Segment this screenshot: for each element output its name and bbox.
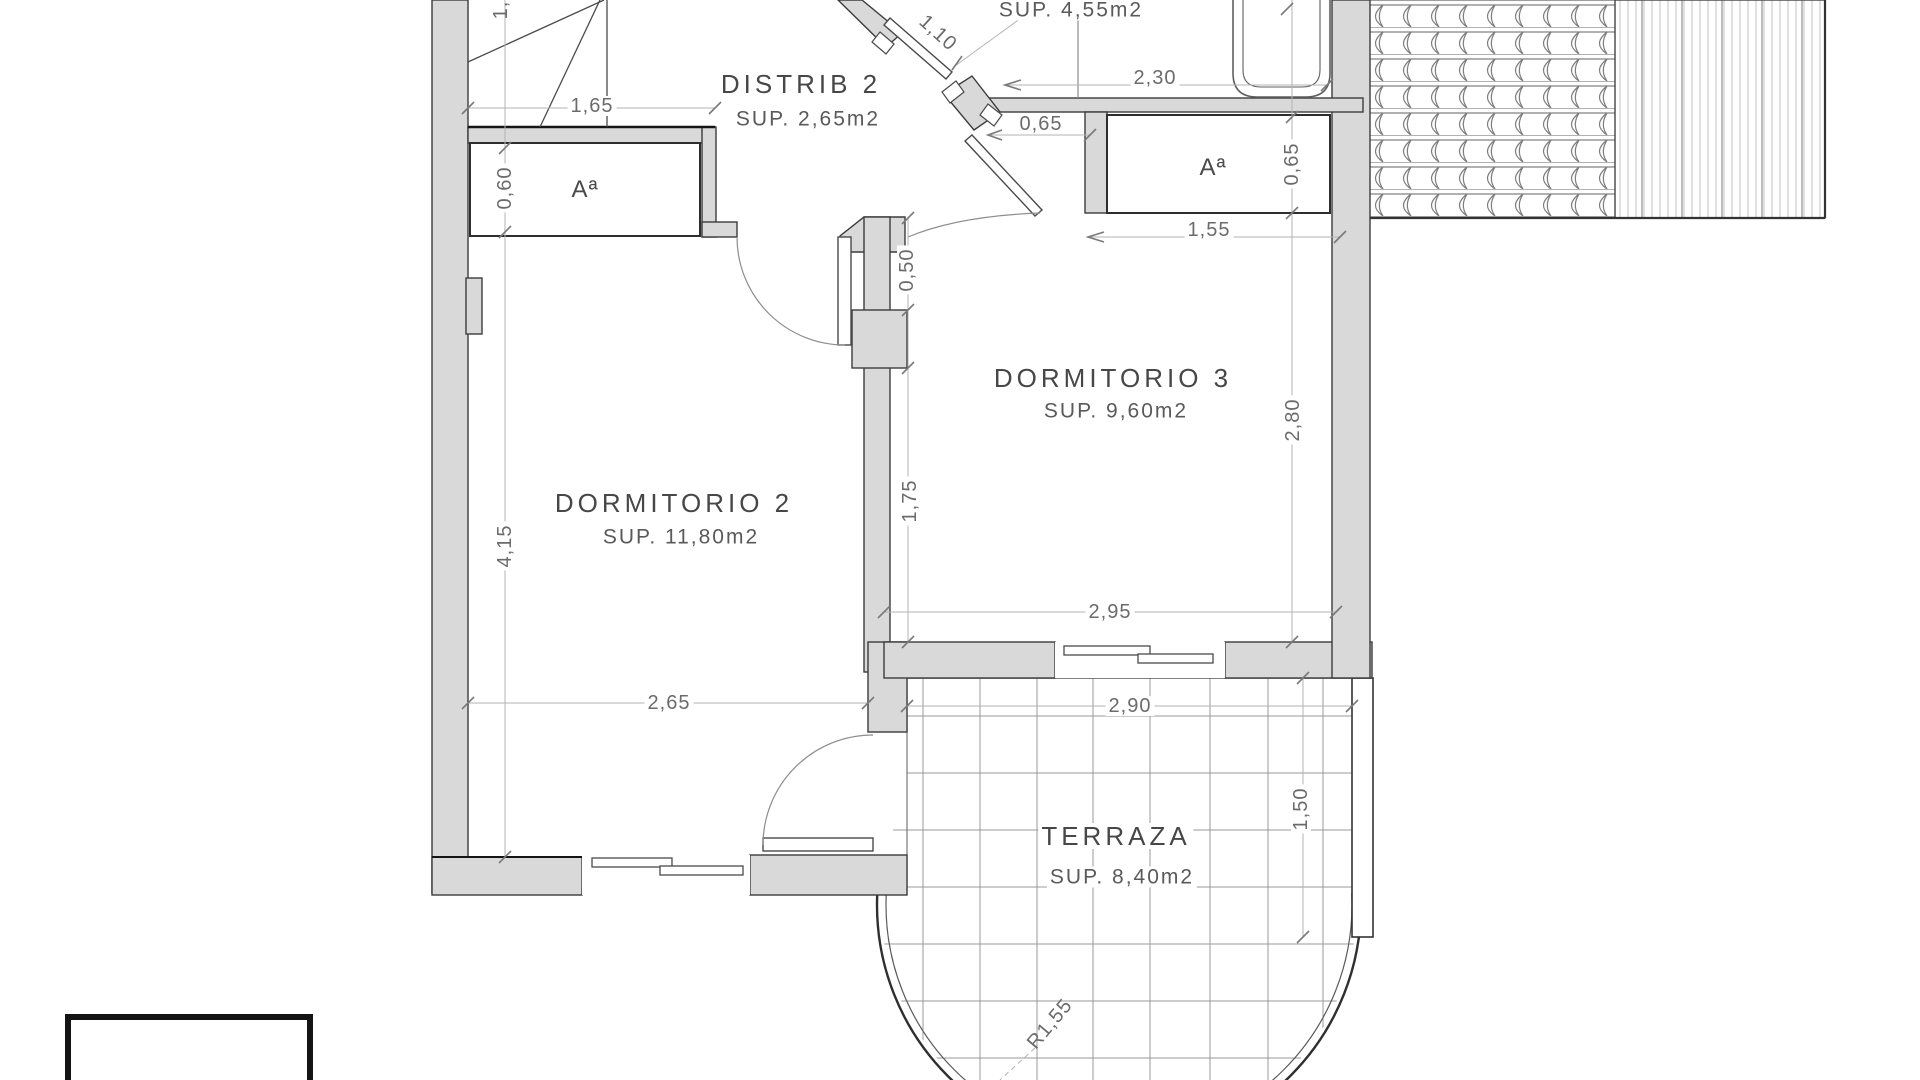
room-label-terraza: TERRAZA <box>1038 823 1193 849</box>
roof-tile-hatch <box>1370 0 1615 218</box>
dim-wardrobe3-depth: 0,65 <box>1282 140 1302 189</box>
dim-dorm2-width: 2,65 <box>645 693 694 713</box>
dorm2-door-leaf <box>838 237 851 345</box>
room-area-terraza: SUP. 8,40m2 <box>1047 867 1197 888</box>
room-label-dorm3: DORMITORIO 3 <box>991 365 1235 391</box>
dim-dorm3-height: 2,80 <box>1283 396 1303 445</box>
room-area-distrib: SUP. 2,65m2 <box>733 109 883 130</box>
roof-decking-hatch <box>1615 0 1825 218</box>
floor-plan-drawing <box>0 0 1920 1080</box>
dim-stair-width: 1,65 <box>568 96 617 116</box>
floor-plan: DISTRIB 2 SUP. 2,65m2 DORMITORIO 2 SUP. … <box>0 0 1920 1080</box>
dim-wall-bottom: 1,75 <box>900 477 920 526</box>
dim-wardrobe3-width: 1,55 <box>1185 220 1234 240</box>
dorm3-door-leaf <box>965 135 1042 216</box>
wardrobe-label-right: Aª <box>1197 156 1230 180</box>
dorm2-terraza-door-leaf <box>763 838 873 851</box>
room-label-distrib: DISTRIB 2 <box>718 71 884 97</box>
dim-terraza-depth: 1,50 <box>1291 785 1311 834</box>
dorm3-door-swing <box>908 213 1040 237</box>
dim-bath-width: 2,30 <box>1131 68 1180 88</box>
room-area-dorm3: SUP. 9,60m2 <box>1041 401 1191 422</box>
dorm2-door-swing <box>737 237 845 345</box>
dim-dorm2-height: 4,15 <box>495 522 515 571</box>
room-area-bath: SUP. 4,55m2 <box>996 0 1146 21</box>
dim-door3-width: 0,65 <box>1017 114 1066 134</box>
terraza-right-railing <box>1352 678 1373 937</box>
dim-wardrobe-depth: 0,60 <box>495 164 515 213</box>
dim-dorm3-width: 2,95 <box>1086 602 1135 622</box>
dorm2-terraza-door-swing <box>763 735 873 845</box>
wardrobe-label-left: Aª <box>569 178 602 202</box>
room-area-dorm2: SUP. 11,80m2 <box>600 527 762 548</box>
room-label-dorm2: DORMITORIO 2 <box>552 490 796 516</box>
dim-cut-top-left: 1, <box>491 0 511 22</box>
dim-wall-top: 0,50 <box>897 246 917 295</box>
dim-terraza-width: 2,90 <box>1106 696 1155 716</box>
